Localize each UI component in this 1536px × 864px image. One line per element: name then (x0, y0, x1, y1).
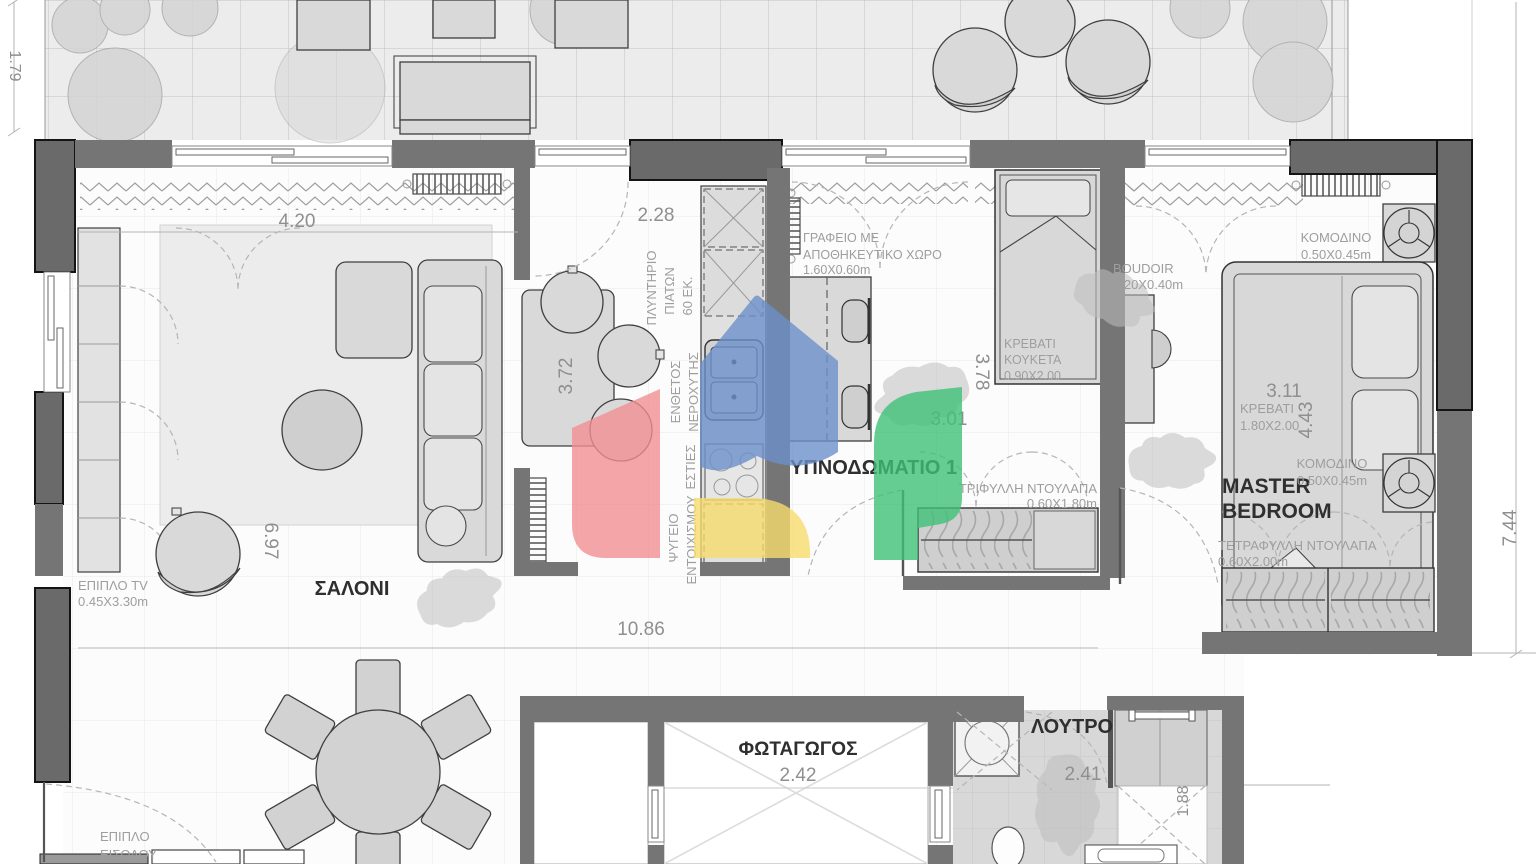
label-boudoir-1: BOUDOIR (1113, 261, 1174, 276)
label-desk-1: ΓΡΑΦΕΙΟ ΜΕ (803, 231, 879, 245)
dim-living-height: 6.97 (260, 523, 281, 560)
label-wardrobe4-2: 0.60X2.00m (1218, 554, 1288, 569)
radiator (1292, 174, 1390, 196)
window (648, 786, 664, 842)
label-master-bed-1: ΚΡΕΒΑΤΙ (1240, 401, 1294, 416)
cabinet (244, 850, 304, 864)
shaft-room (534, 722, 648, 864)
label-sink-1: ΕΝΘΕΤΟΣ (668, 361, 683, 424)
room-label-living: ΣΑΛΟΝΙ (315, 578, 390, 600)
label-wardrobe3-1: ΤΡΙΦΥΛΛΗ ΝΤΟΥΛΑΠΑ (959, 481, 1097, 496)
label-desk-3: 1.60X0.60m (803, 263, 870, 277)
label-nightstand-top-2: 0.50X0.45m (1301, 247, 1371, 262)
label-t v-2: 0.45X3.30m (78, 594, 148, 609)
label-dishwasher-3: 60 ΕΚ. (680, 276, 695, 315)
dim-lightwell-width: 2.42 (780, 765, 817, 786)
round-chair (1066, 20, 1150, 104)
radiator (529, 478, 546, 570)
label-boudoir-2: 1.20X0.40m (1113, 277, 1183, 292)
cabinet (152, 850, 240, 864)
label-dishwasher-2: ΠΙΑΤΩΝ (662, 267, 677, 315)
toilet (992, 827, 1024, 864)
window (172, 146, 392, 166)
floor-plan-drawing: 1.79 4.20 2.28 3.72 6.97 3.78 3.01 3.11 … (0, 0, 1536, 864)
towel-rail (1133, 712, 1189, 719)
label-dishwasher-1: ΠΛΥΝΤΗΡΙΟ (644, 251, 659, 326)
window (782, 146, 970, 166)
label-wardrobe4-1: ΤΕΤΡΑΦΥΛΛΗ ΝΤΟΥΛΑΠΑ (1218, 538, 1377, 553)
dim-left-height: 1.79 (6, 50, 23, 81)
dim-bathroom-width: 2.41 (1065, 764, 1102, 785)
label-wardrobe3-2: 0.60X1.80m (1027, 496, 1097, 511)
label-nightstand-bottom-1: ΚΟΜΟΔΙΝΟ (1297, 456, 1368, 471)
dim-bedroom1-height: 3.78 (971, 354, 992, 391)
dim-right-height: 7.44 (1500, 509, 1521, 546)
dim-master-width: 3.11 (1266, 381, 1302, 402)
label-master-bed-2: 1.80X2.00 (1240, 418, 1299, 433)
floor-plan-page: 1.79 4.20 2.28 3.72 6.97 3.78 3.01 3.11 … (0, 0, 1536, 864)
window (930, 786, 950, 842)
nightstand-top (1383, 204, 1435, 262)
window (535, 146, 630, 166)
label-sink-2: ΝΕΡΟΧΥΤΗΣ (686, 352, 701, 432)
label-fridge-1: ΨΥΓΕΙΟ (666, 513, 681, 562)
dim-kitchen-width: 2.28 (638, 205, 675, 226)
room-label-bathroom: ΛΟΥΤΡΟ (1031, 716, 1113, 738)
bottom-band (534, 708, 1222, 864)
window (1145, 146, 1290, 166)
label-bunk-2: ΚΟΥΚΕΤΑ (1004, 353, 1062, 367)
label-nightstand-top-1: ΚΟΜΟΔΙΝΟ (1301, 230, 1372, 245)
window (44, 272, 70, 392)
label-nightstand-bottom-2: 0.50X0.45m (1297, 473, 1367, 488)
label-entrance-2: ΕΙΣΟΔΟΥ (100, 847, 157, 862)
round-chair (933, 28, 1017, 112)
vanity (1085, 845, 1177, 864)
radiator (403, 174, 511, 194)
label-bunk-1: ΚΡΕΒΑΤΙ (1004, 337, 1056, 351)
dim-living-width: 4.20 (279, 211, 316, 232)
bathroom-closet (1115, 710, 1207, 786)
label-hob: ΕΣΤΙΕΣ (683, 445, 698, 490)
wardrobe-4door (1222, 568, 1434, 632)
dim-kitchen-height: 3.72 (556, 358, 577, 395)
label-entrance-1: ΕΠΙΠΛΟ (100, 829, 150, 844)
dim-bathroom-height: 1.88 (1175, 785, 1192, 816)
nightstand-bottom (1383, 454, 1435, 512)
label-bunk-3: 0.90X2.00 (1004, 369, 1061, 383)
room-label-master-2: BEDROOM (1222, 500, 1332, 523)
dim-corridor-width: 10.86 (617, 619, 665, 640)
ottoman (282, 390, 362, 470)
side-table (426, 506, 466, 546)
room-label-lightwell: ΦΩΤΑΓΩΓΟΣ (738, 739, 857, 760)
label-desk-2: ΑΠΟΘΗΚΕΥΤΙΚΟ ΧΩΡΟ (803, 248, 942, 262)
label-tv-1: ΕΠΙΠΛΟ TV (78, 578, 148, 593)
terrace (45, 0, 1536, 143)
